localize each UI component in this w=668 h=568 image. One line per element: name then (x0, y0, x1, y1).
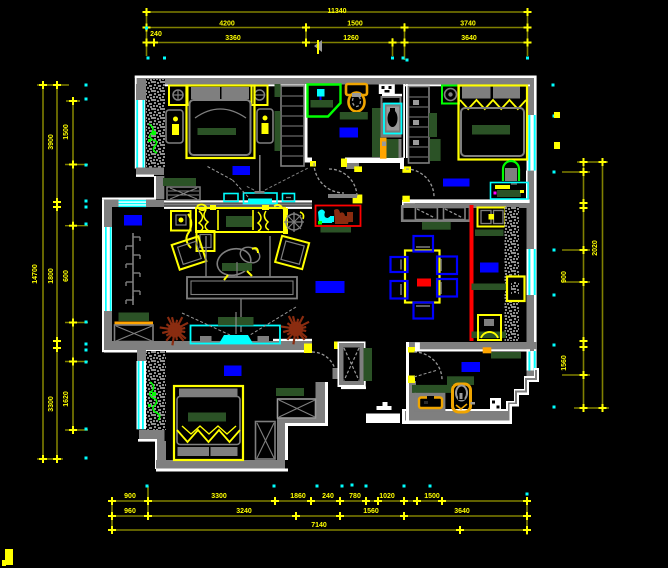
svg-text:3900: 3900 (48, 134, 55, 150)
svg-text:1560: 1560 (561, 355, 568, 371)
svg-text:4200: 4200 (219, 21, 235, 28)
svg-text:900: 900 (561, 271, 568, 283)
svg-text:960: 960 (124, 508, 136, 515)
svg-text:1620: 1620 (63, 391, 70, 407)
svg-text:3300: 3300 (211, 493, 227, 500)
svg-text:1260: 1260 (343, 35, 359, 42)
svg-text:1500: 1500 (347, 21, 363, 28)
svg-text:3640: 3640 (454, 508, 470, 515)
svg-text:2020: 2020 (592, 240, 599, 256)
svg-text:1860: 1860 (290, 493, 306, 500)
svg-text:1800: 1800 (48, 268, 55, 284)
svg-text:600: 600 (63, 270, 70, 282)
svg-text:3300: 3300 (48, 396, 55, 412)
svg-text:1020: 1020 (379, 493, 395, 500)
svg-text:14700: 14700 (32, 264, 39, 284)
svg-text:240: 240 (150, 31, 162, 38)
svg-text:1500: 1500 (424, 493, 440, 500)
svg-text:7140: 7140 (311, 522, 327, 529)
svg-text:240: 240 (322, 493, 334, 500)
svg-text:780: 780 (349, 493, 361, 500)
svg-text:1560: 1560 (363, 508, 379, 515)
svg-text:3360: 3360 (225, 35, 241, 42)
svg-text:1500: 1500 (63, 124, 70, 140)
svg-text:3640: 3640 (461, 35, 477, 42)
svg-text:3240: 3240 (236, 508, 252, 515)
svg-text:900: 900 (124, 493, 136, 500)
svg-text:11340: 11340 (327, 8, 346, 15)
svg-text:3740: 3740 (460, 21, 476, 28)
